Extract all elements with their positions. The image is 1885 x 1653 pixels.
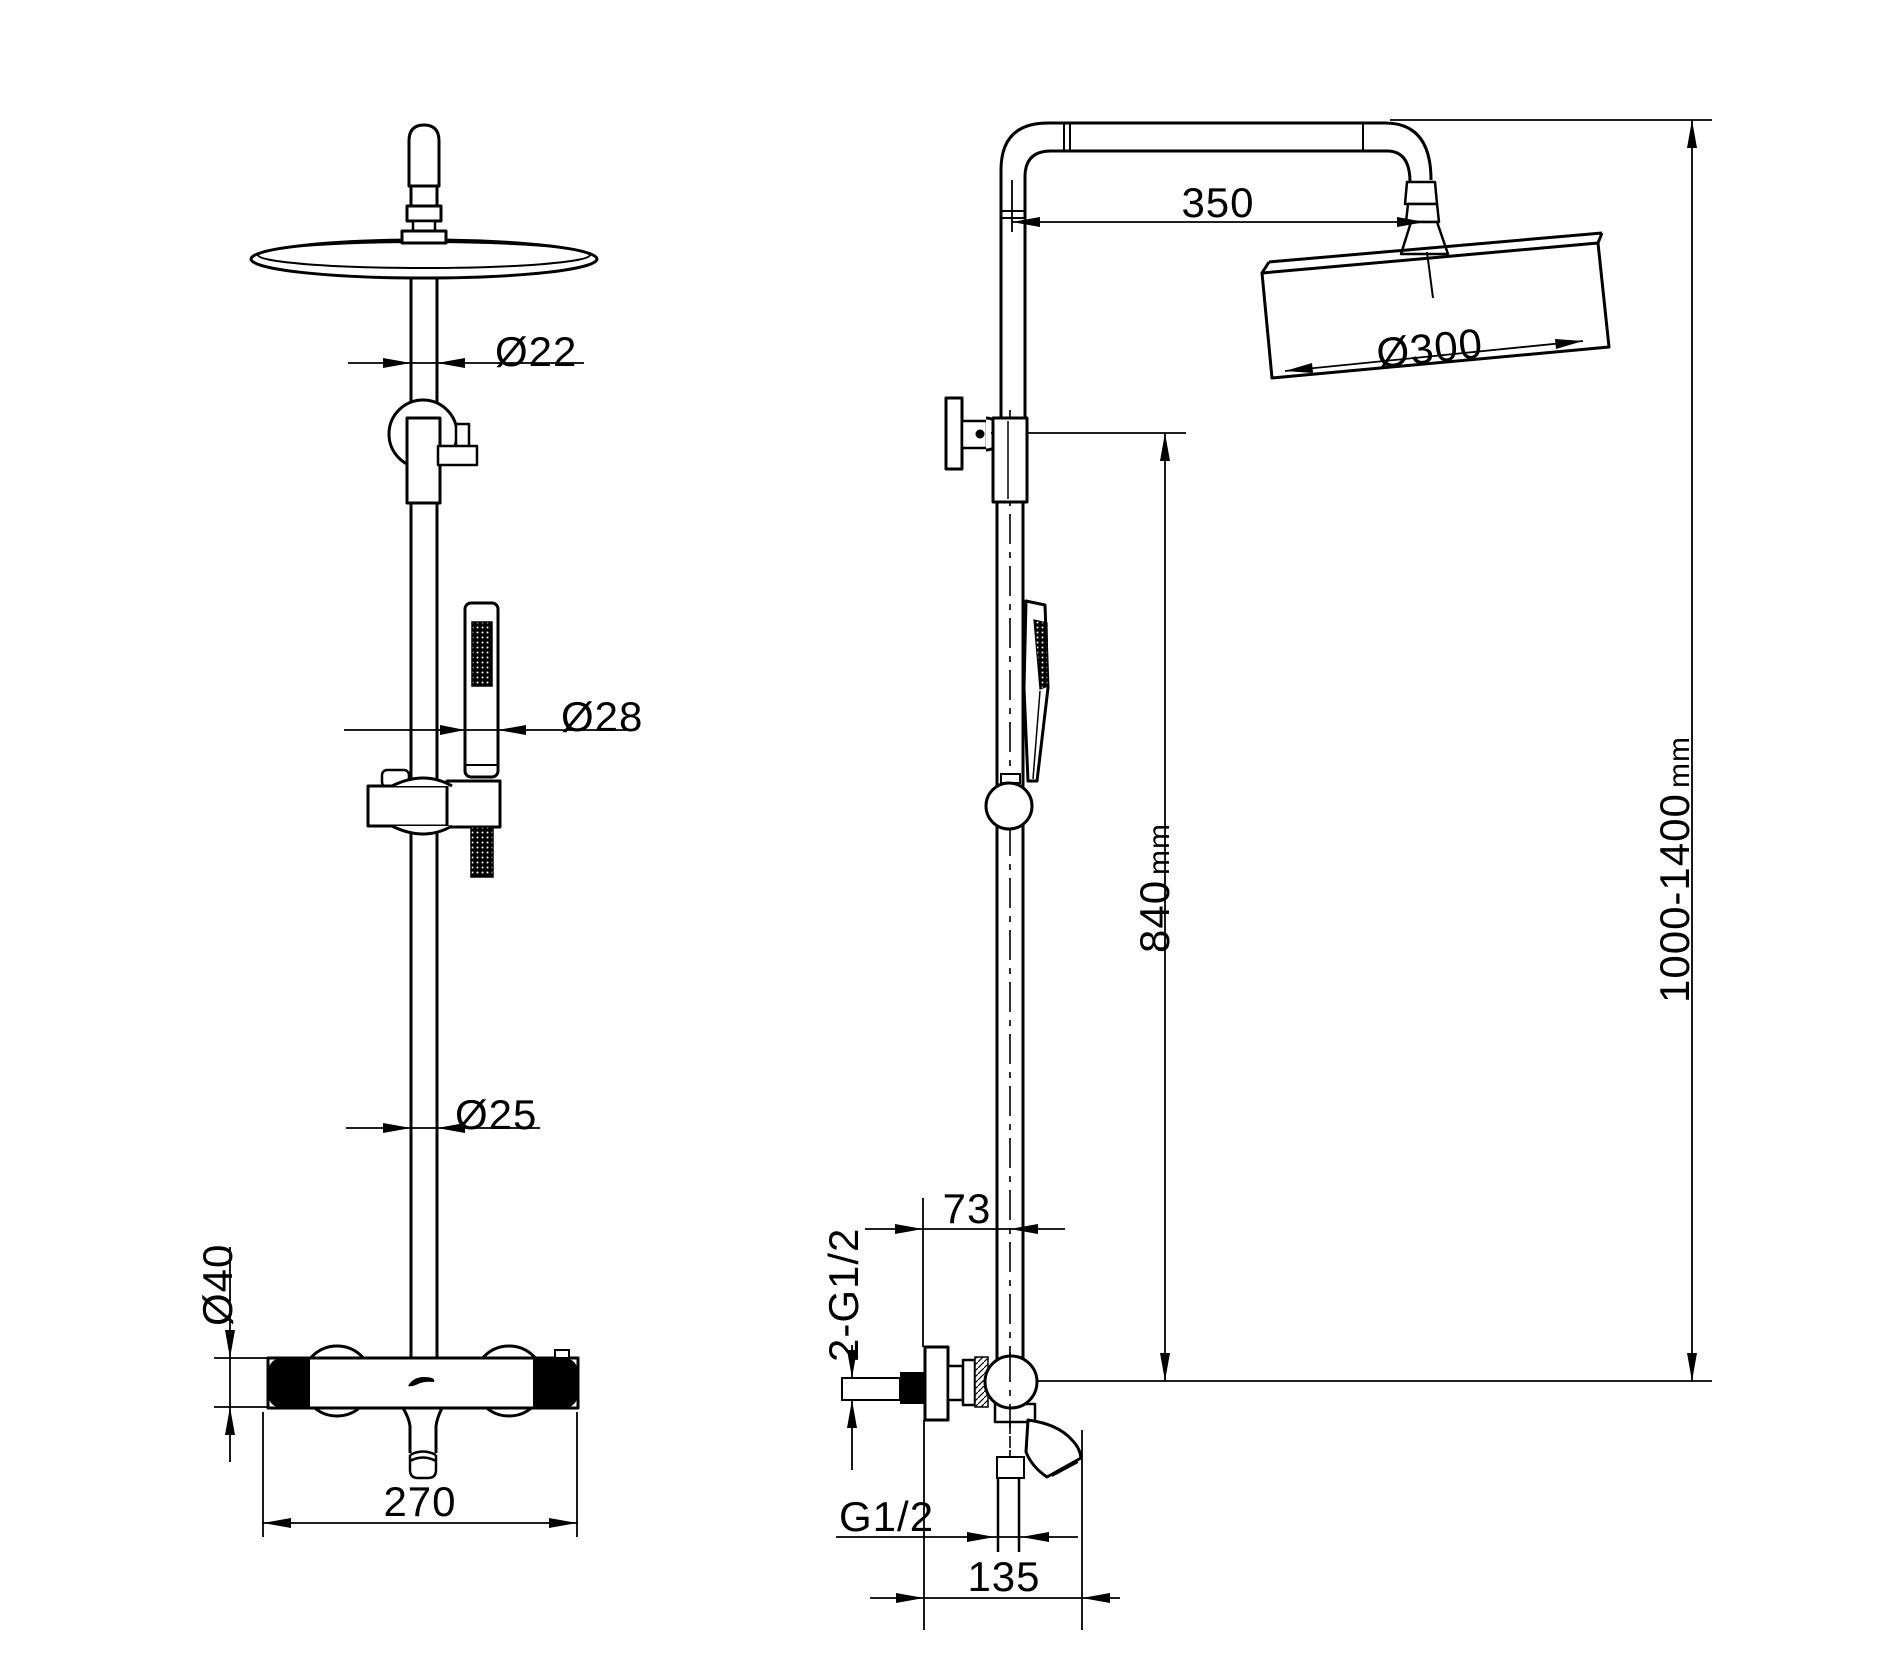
dim-label-73: 73: [943, 1185, 992, 1232]
wall-flange: [925, 1347, 948, 1420]
dim-height-to-bracket: 840 mm: [1037, 433, 1712, 1381]
dim-valve-width: 270: [263, 1412, 577, 1537]
dim-pipe-above-head: Ø22: [348, 328, 584, 375]
hand-shower-spray-face: [472, 622, 492, 686]
mixer-aerator: [410, 1452, 436, 1479]
dim-arm-reach: 350: [1012, 179, 1425, 232]
dim-label-o40: Ø40: [194, 1244, 241, 1326]
dim-label-total-height: 1000-1400: [1651, 793, 1698, 1003]
front-view: Ø22 Ø28: [194, 125, 643, 1537]
hose-nut: [997, 1457, 1024, 1478]
supply-stub: [842, 1378, 900, 1400]
shower-hose: [998, 1478, 1019, 1552]
dim-label-840: 840: [1131, 880, 1178, 953]
telescopic-sleeve: [993, 418, 1027, 502]
dim-label-270: 270: [383, 1478, 456, 1525]
dim-label-inlet-thread: 2-G1/2: [820, 1228, 867, 1362]
dim-valve-body: Ø40: [194, 1244, 268, 1462]
mixer-left-handle: [268, 1358, 310, 1408]
wall-bracket-front: [389, 400, 477, 503]
side-view: 350 Ø300: [820, 120, 1712, 1630]
dim-label-o25: Ø25: [455, 1091, 537, 1138]
slider-holder-front: [368, 770, 500, 877]
hand-shower-side: [1024, 601, 1048, 781]
mixer-button: [555, 1350, 569, 1358]
dim-riser: Ø25: [346, 1091, 540, 1138]
slider-knob-side: [986, 774, 1032, 829]
dim-label-o28: Ø28: [561, 693, 643, 740]
dim-label-hose-thread: G1/2: [839, 1493, 934, 1540]
mixer-spout-side: [1026, 1420, 1081, 1477]
mixer-valve-front: [268, 1346, 578, 1478]
dim-label-o22: Ø22: [495, 328, 577, 375]
mixer-ball-body: [985, 1356, 1037, 1408]
dim-hose-thread: G1/2: [836, 1493, 1078, 1542]
head-connector: [1401, 182, 1448, 254]
dim-label-350: 350: [1181, 179, 1254, 226]
supply-nut: [900, 1372, 925, 1404]
dim-wall-to-riser: 73: [865, 1185, 1065, 1347]
technical-drawing-page: Ø22 Ø28: [0, 0, 1885, 1653]
shower-drawing-svg: Ø22 Ø28: [0, 0, 1885, 1653]
dim-label-total-height-unit: mm: [1663, 736, 1696, 788]
hose-connector-front: [471, 827, 493, 877]
hand-shower-front: [465, 603, 498, 777]
riser-top-cap: [402, 125, 446, 243]
dim-label-135: 135: [967, 1553, 1040, 1600]
dim-label-840-unit: mm: [1143, 823, 1176, 875]
mixer-spout-front: [403, 1408, 442, 1453]
dim-label-o300: Ø300: [1374, 319, 1485, 377]
dim-inlet-thread: 2-G1/2: [820, 1228, 867, 1470]
mixer-right-handle: [533, 1358, 578, 1408]
